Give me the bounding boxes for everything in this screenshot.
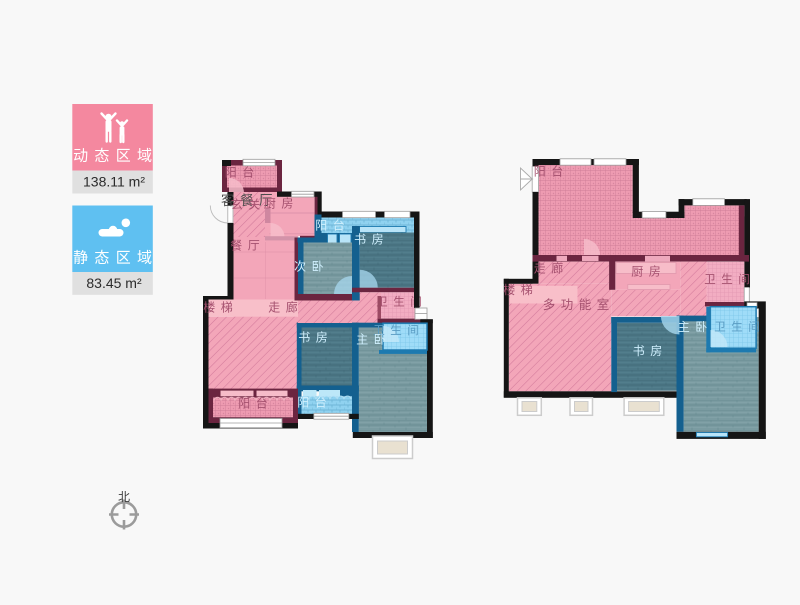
svg-text:阳台: 阳台 <box>534 164 569 179</box>
svg-text:卫生间: 卫生间 <box>376 295 427 309</box>
svg-text:阳台: 阳台 <box>297 395 332 410</box>
svg-text:书房: 书房 <box>298 330 333 345</box>
svg-text:北: 北 <box>118 490 136 504</box>
svg-text:次卧: 次卧 <box>294 260 329 274</box>
svg-text:阳台: 阳台 <box>225 165 260 180</box>
svg-text:书房: 书房 <box>633 343 668 358</box>
svg-text:卫生间: 卫生间 <box>714 320 765 334</box>
svg-text:书房: 书房 <box>354 232 389 247</box>
svg-text:多功能室: 多功能室 <box>543 297 615 312</box>
svg-text:83.45 m²: 83.45 m² <box>86 275 142 291</box>
svg-text:玄关: 玄关 <box>231 197 266 212</box>
svg-text:楼梯: 楼梯 <box>503 282 538 297</box>
svg-text:厨房: 厨房 <box>264 196 299 211</box>
svg-text:餐厅: 餐厅 <box>230 238 265 253</box>
svg-text:厨房: 厨房 <box>631 264 666 279</box>
svg-text:静态区域: 静态区域 <box>73 250 158 267</box>
svg-text:主卧: 主卧 <box>678 320 713 334</box>
svg-text:阳台: 阳台 <box>238 396 273 411</box>
svg-text:走廊: 走廊 <box>268 300 303 315</box>
svg-text:楼梯: 楼梯 <box>203 300 238 315</box>
svg-text:主卧: 主卧 <box>356 333 391 347</box>
svg-text:阳台: 阳台 <box>315 218 350 233</box>
svg-text:卫生间: 卫生间 <box>704 272 755 286</box>
svg-text:138.11 m²: 138.11 m² <box>83 174 145 190</box>
svg-text:走廊: 走廊 <box>534 260 569 275</box>
svg-text:动态区域: 动态区域 <box>73 148 158 165</box>
